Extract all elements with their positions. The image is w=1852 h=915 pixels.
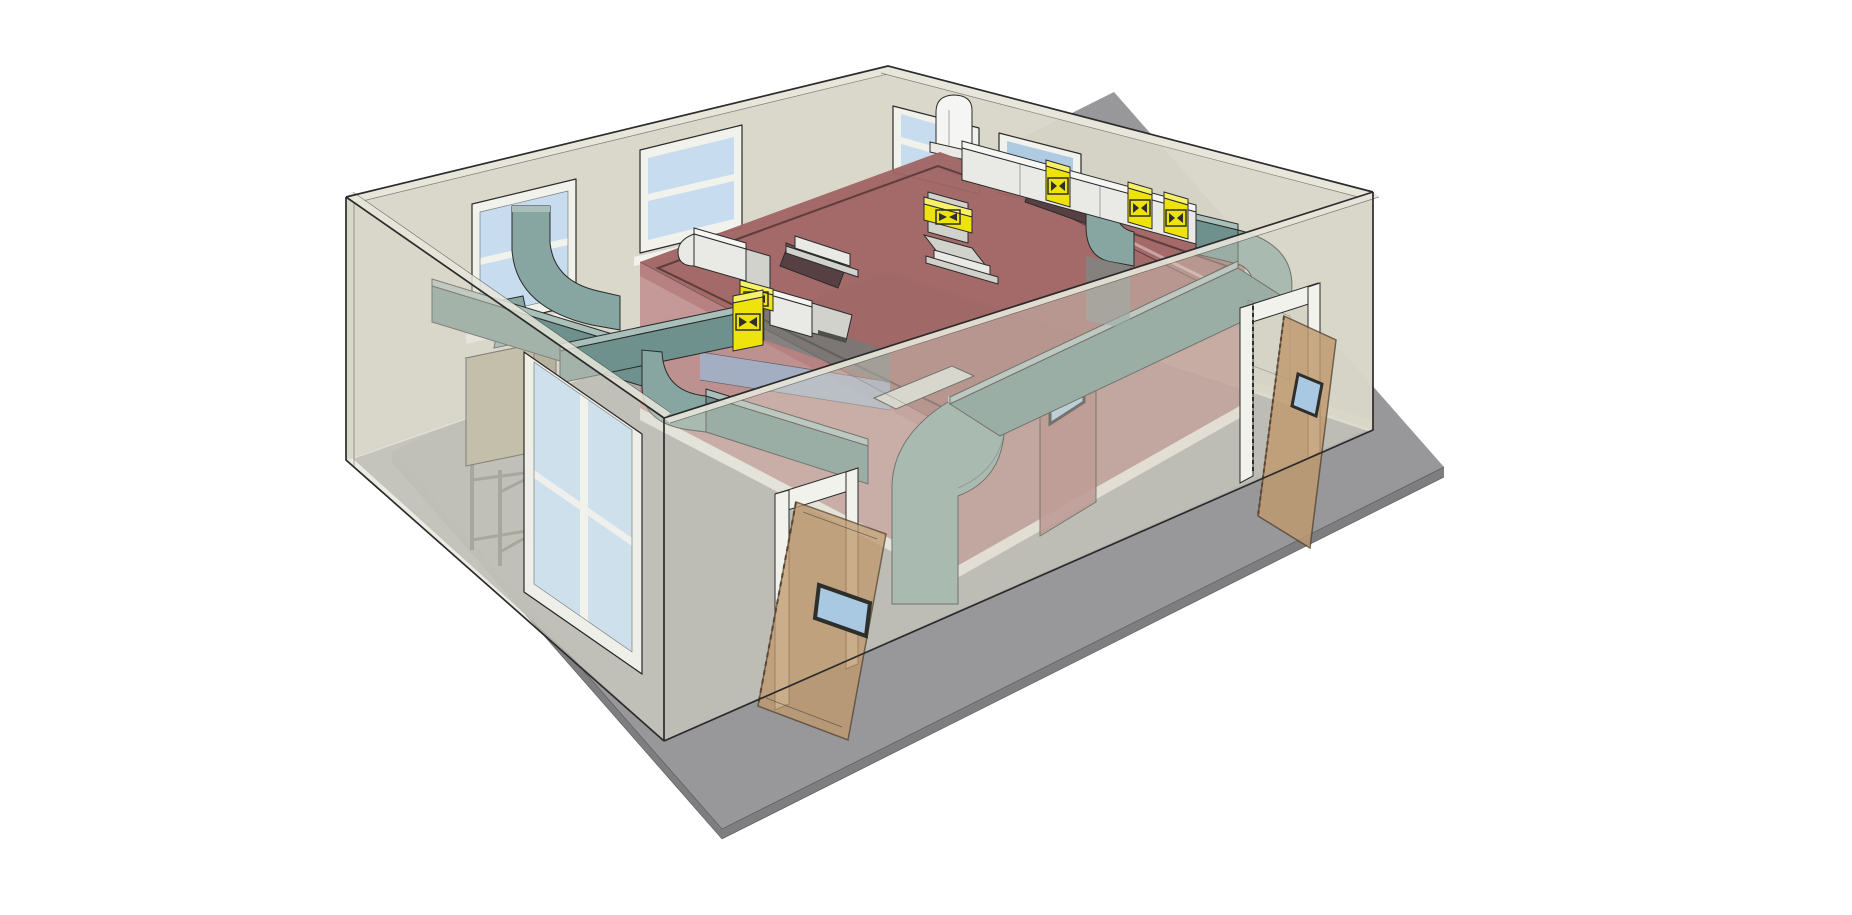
fire-damper	[1046, 160, 1070, 207]
fire-damper	[733, 290, 763, 351]
fire-damper	[1164, 192, 1188, 239]
elbow-top-band	[512, 206, 550, 212]
door-jamb-left	[1240, 304, 1253, 483]
fire-damper	[1128, 182, 1152, 229]
model-viewport	[0, 0, 1852, 915]
isometric-room-model	[0, 0, 1852, 915]
